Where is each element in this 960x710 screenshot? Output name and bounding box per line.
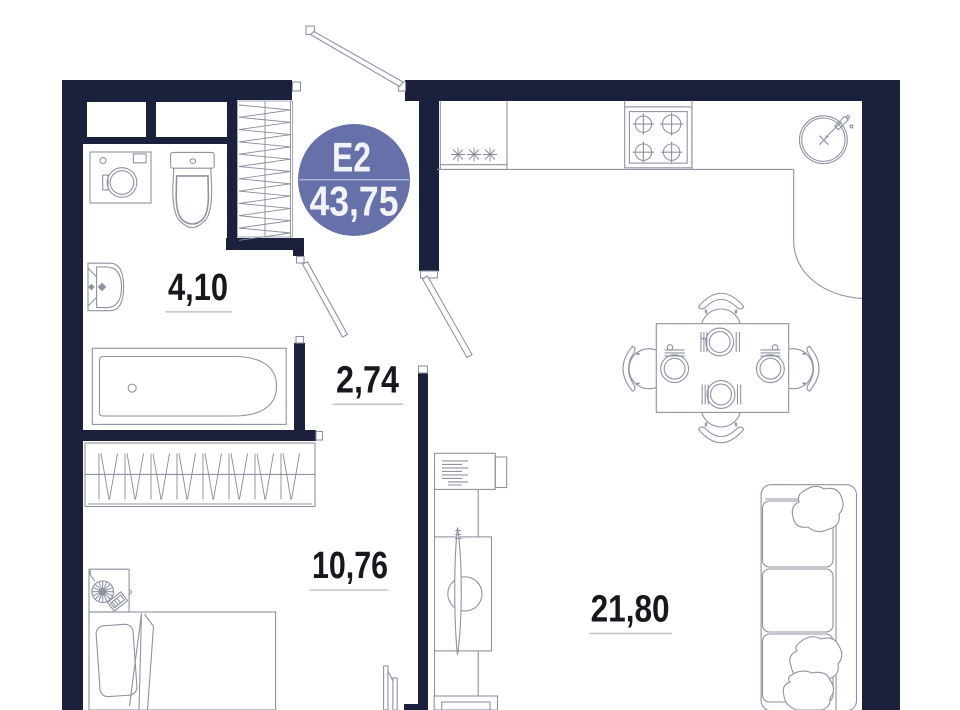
svg-text:2,74: 2,74 — [336, 360, 399, 402]
svg-text:10,76: 10,76 — [312, 545, 388, 587]
svg-text:43,75: 43,75 — [310, 178, 399, 225]
svg-text:E2: E2 — [332, 134, 371, 181]
svg-text:4,10: 4,10 — [168, 267, 228, 309]
svg-text:21,80: 21,80 — [591, 589, 670, 631]
